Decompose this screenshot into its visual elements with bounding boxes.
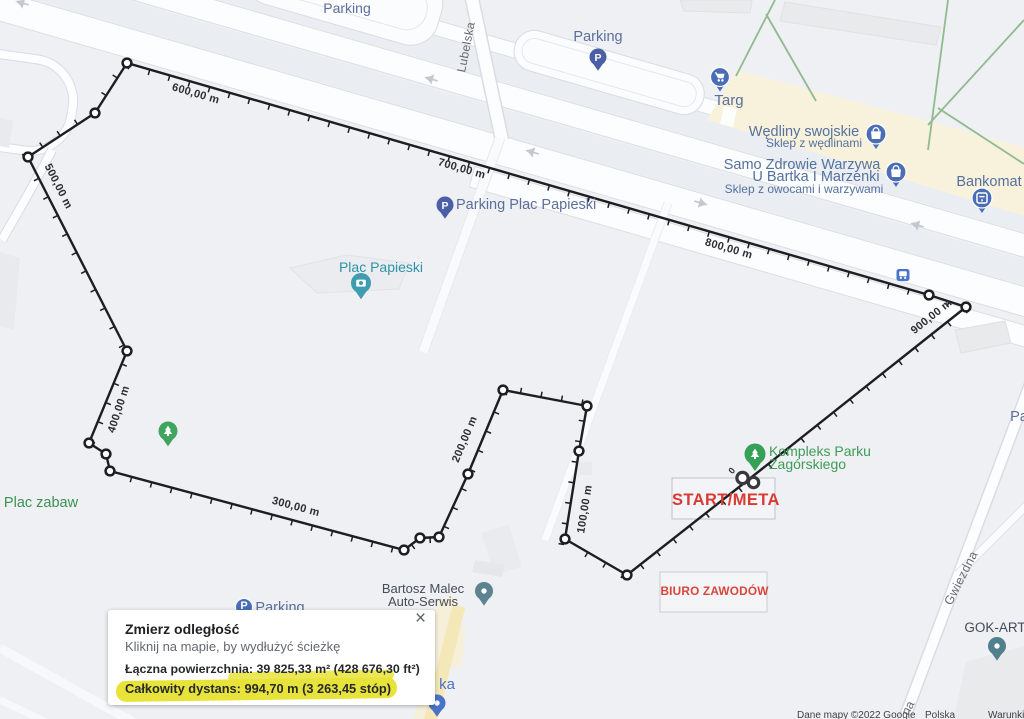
svg-text:P: P — [441, 200, 448, 212]
svg-text:P: P — [594, 52, 601, 64]
